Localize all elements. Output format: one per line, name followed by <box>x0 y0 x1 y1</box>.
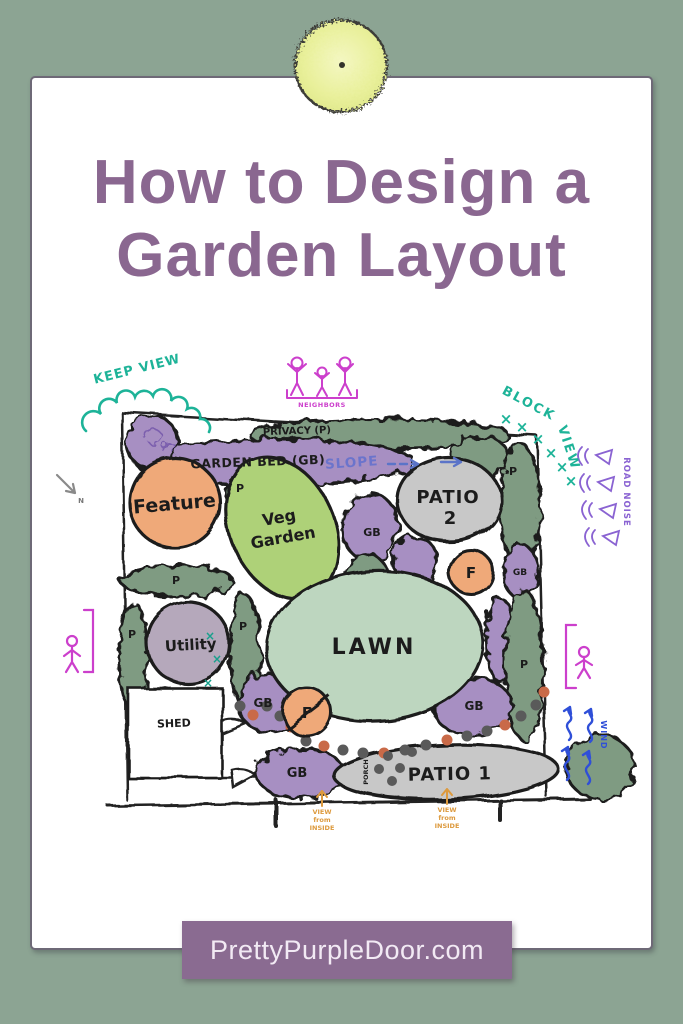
shed-label: SHED <box>157 716 191 730</box>
flower-center-dot <box>339 62 345 68</box>
page-title: How to Design a Garden Layout <box>0 146 683 292</box>
title-line-2: Garden Layout <box>0 219 683 292</box>
lawn-label: LAWN <box>332 635 417 660</box>
road-noise-label: ROAD NOISE <box>621 457 631 527</box>
p-label: P <box>172 574 180 587</box>
porch-label: PORCH <box>362 759 370 785</box>
f-label: F <box>302 704 312 722</box>
gb-label: GB <box>465 699 484 713</box>
patio2-label-1: PATIO <box>416 487 479 508</box>
f-label: F <box>466 564 476 582</box>
block-view-x: × <box>532 430 545 448</box>
road-noise-icon <box>578 447 619 546</box>
utility-x: × <box>203 676 213 690</box>
garden-plan-sketch: KEEP VIEW NEIGHBORS BLOCK VIEW × × × × ×… <box>40 340 660 850</box>
utility-x: × <box>212 652 222 666</box>
north-label: N <box>78 497 84 505</box>
block-view-x: × <box>565 472 578 490</box>
keep-view-label: KEEP VIEW <box>92 352 182 388</box>
p-label: P <box>239 620 247 633</box>
block-view-x: × <box>516 418 529 436</box>
website-banner: PrettyPurpleDoor.com <box>182 921 512 979</box>
patio1-label: PATIO 1 <box>408 763 493 785</box>
gb-label: GB <box>287 766 308 781</box>
neighbors-label: NEIGHBORS <box>298 401 346 409</box>
patio2-label-2: 2 <box>444 508 457 529</box>
gb-label: GB <box>254 696 273 710</box>
shed-rect <box>128 688 222 778</box>
p-label: P <box>520 658 528 671</box>
view-inside-label-1: from <box>313 816 330 824</box>
title-line-1: How to Design a <box>0 146 683 219</box>
view-inside-label-2: INSIDE <box>435 822 460 830</box>
north-arrow-icon <box>57 475 75 493</box>
neighbors-icon <box>287 358 357 399</box>
flower-icon <box>283 8 399 124</box>
p-label: P <box>509 465 517 478</box>
p-label: P <box>236 482 244 495</box>
view-inside-label-2: from <box>438 814 455 822</box>
stick-figure-right-icon <box>566 625 592 688</box>
view-inside-label-2: VIEW <box>437 806 456 814</box>
view-inside-label-1: VIEW <box>312 808 331 816</box>
utility-x: × <box>205 629 215 643</box>
view-inside-label-1: INSIDE <box>310 824 335 832</box>
stick-figure-left-icon <box>64 610 93 672</box>
wind-label: WIND <box>599 720 608 749</box>
gb-label: GB <box>363 526 380 539</box>
p-label: P <box>128 628 136 641</box>
website-url: PrettyPurpleDoor.com <box>210 935 484 965</box>
gb-label: GB <box>513 568 527 578</box>
block-view-x: × <box>500 410 513 428</box>
